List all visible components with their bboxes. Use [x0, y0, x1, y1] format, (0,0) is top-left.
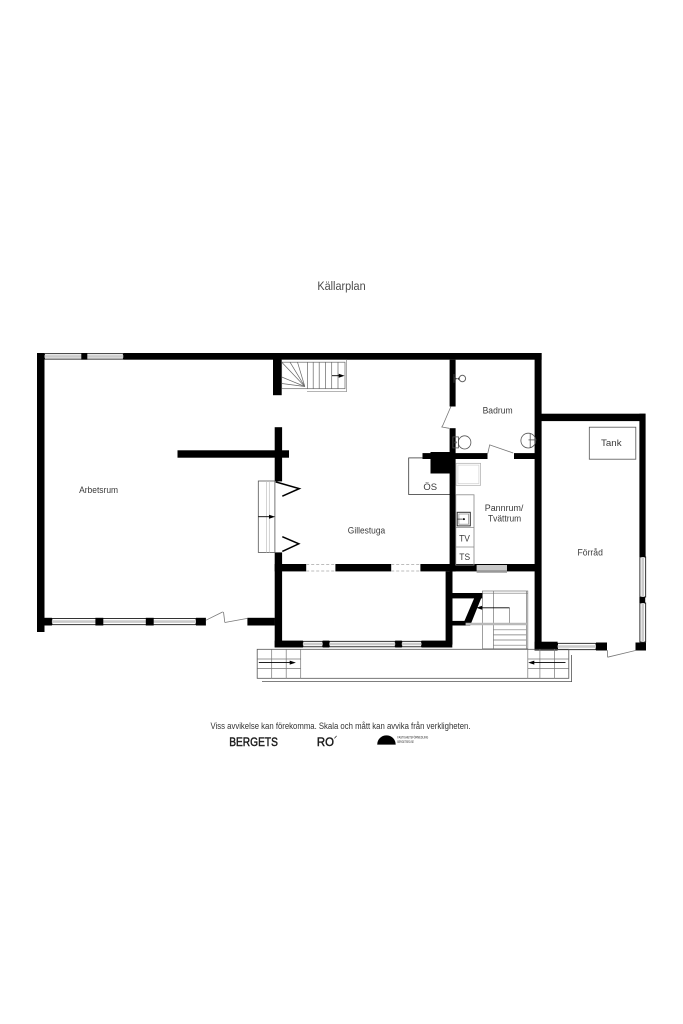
- svg-text:ÖS: ÖS: [423, 482, 437, 493]
- svg-text:Arbetsrum: Arbetsrum: [79, 485, 118, 496]
- svg-text:Förråd: Förråd: [578, 548, 603, 559]
- svg-text:TS: TS: [459, 552, 470, 563]
- svg-text:Pannrum/: Pannrum/: [485, 503, 524, 514]
- svg-text:Viss avvikelse kan förekomma.: Viss avvikelse kan förekomma. Skala och …: [211, 721, 471, 731]
- svg-text:RO: RO: [317, 735, 334, 749]
- svg-text:Tank: Tank: [601, 438, 622, 449]
- svg-text:Badrum: Badrum: [483, 406, 513, 417]
- svg-text:BERGETSRO.SE: BERGETSRO.SE: [397, 740, 414, 744]
- svg-text:TV: TV: [459, 534, 470, 545]
- svg-text:Källarplan: Källarplan: [317, 279, 365, 293]
- svg-text:BERGETS: BERGETS: [229, 735, 278, 749]
- svg-text:Gillestuga: Gillestuga: [348, 525, 386, 536]
- svg-text:Tvättrum: Tvättrum: [488, 514, 521, 525]
